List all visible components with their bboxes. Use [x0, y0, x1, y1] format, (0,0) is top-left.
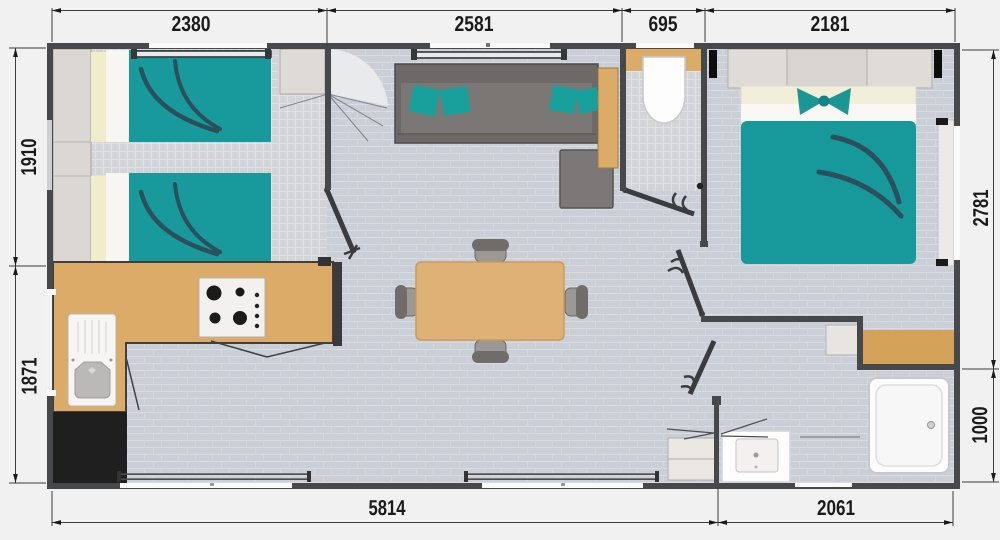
svg-text:2181: 2181	[811, 12, 850, 36]
svg-text:695: 695	[649, 12, 678, 36]
svg-text:2061: 2061	[817, 496, 855, 520]
svg-text:1000: 1000	[968, 406, 992, 443]
svg-text:5814: 5814	[369, 496, 406, 520]
svg-text:2581: 2581	[455, 12, 494, 36]
svg-text:2380: 2380	[172, 12, 211, 36]
svg-text:1910: 1910	[17, 138, 41, 175]
svg-text:1871: 1871	[18, 357, 42, 394]
svg-text:2781: 2781	[969, 189, 993, 226]
